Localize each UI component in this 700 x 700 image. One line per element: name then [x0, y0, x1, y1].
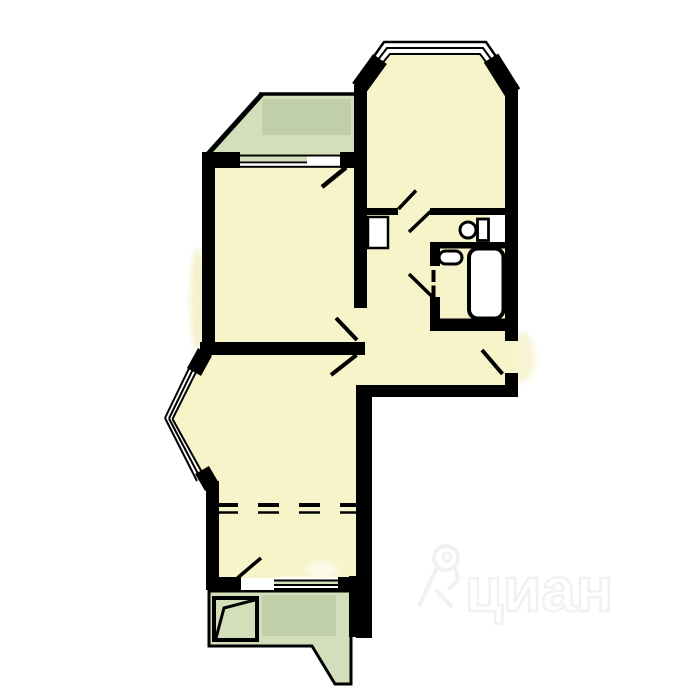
svg-text:циан: циан [465, 556, 613, 625]
